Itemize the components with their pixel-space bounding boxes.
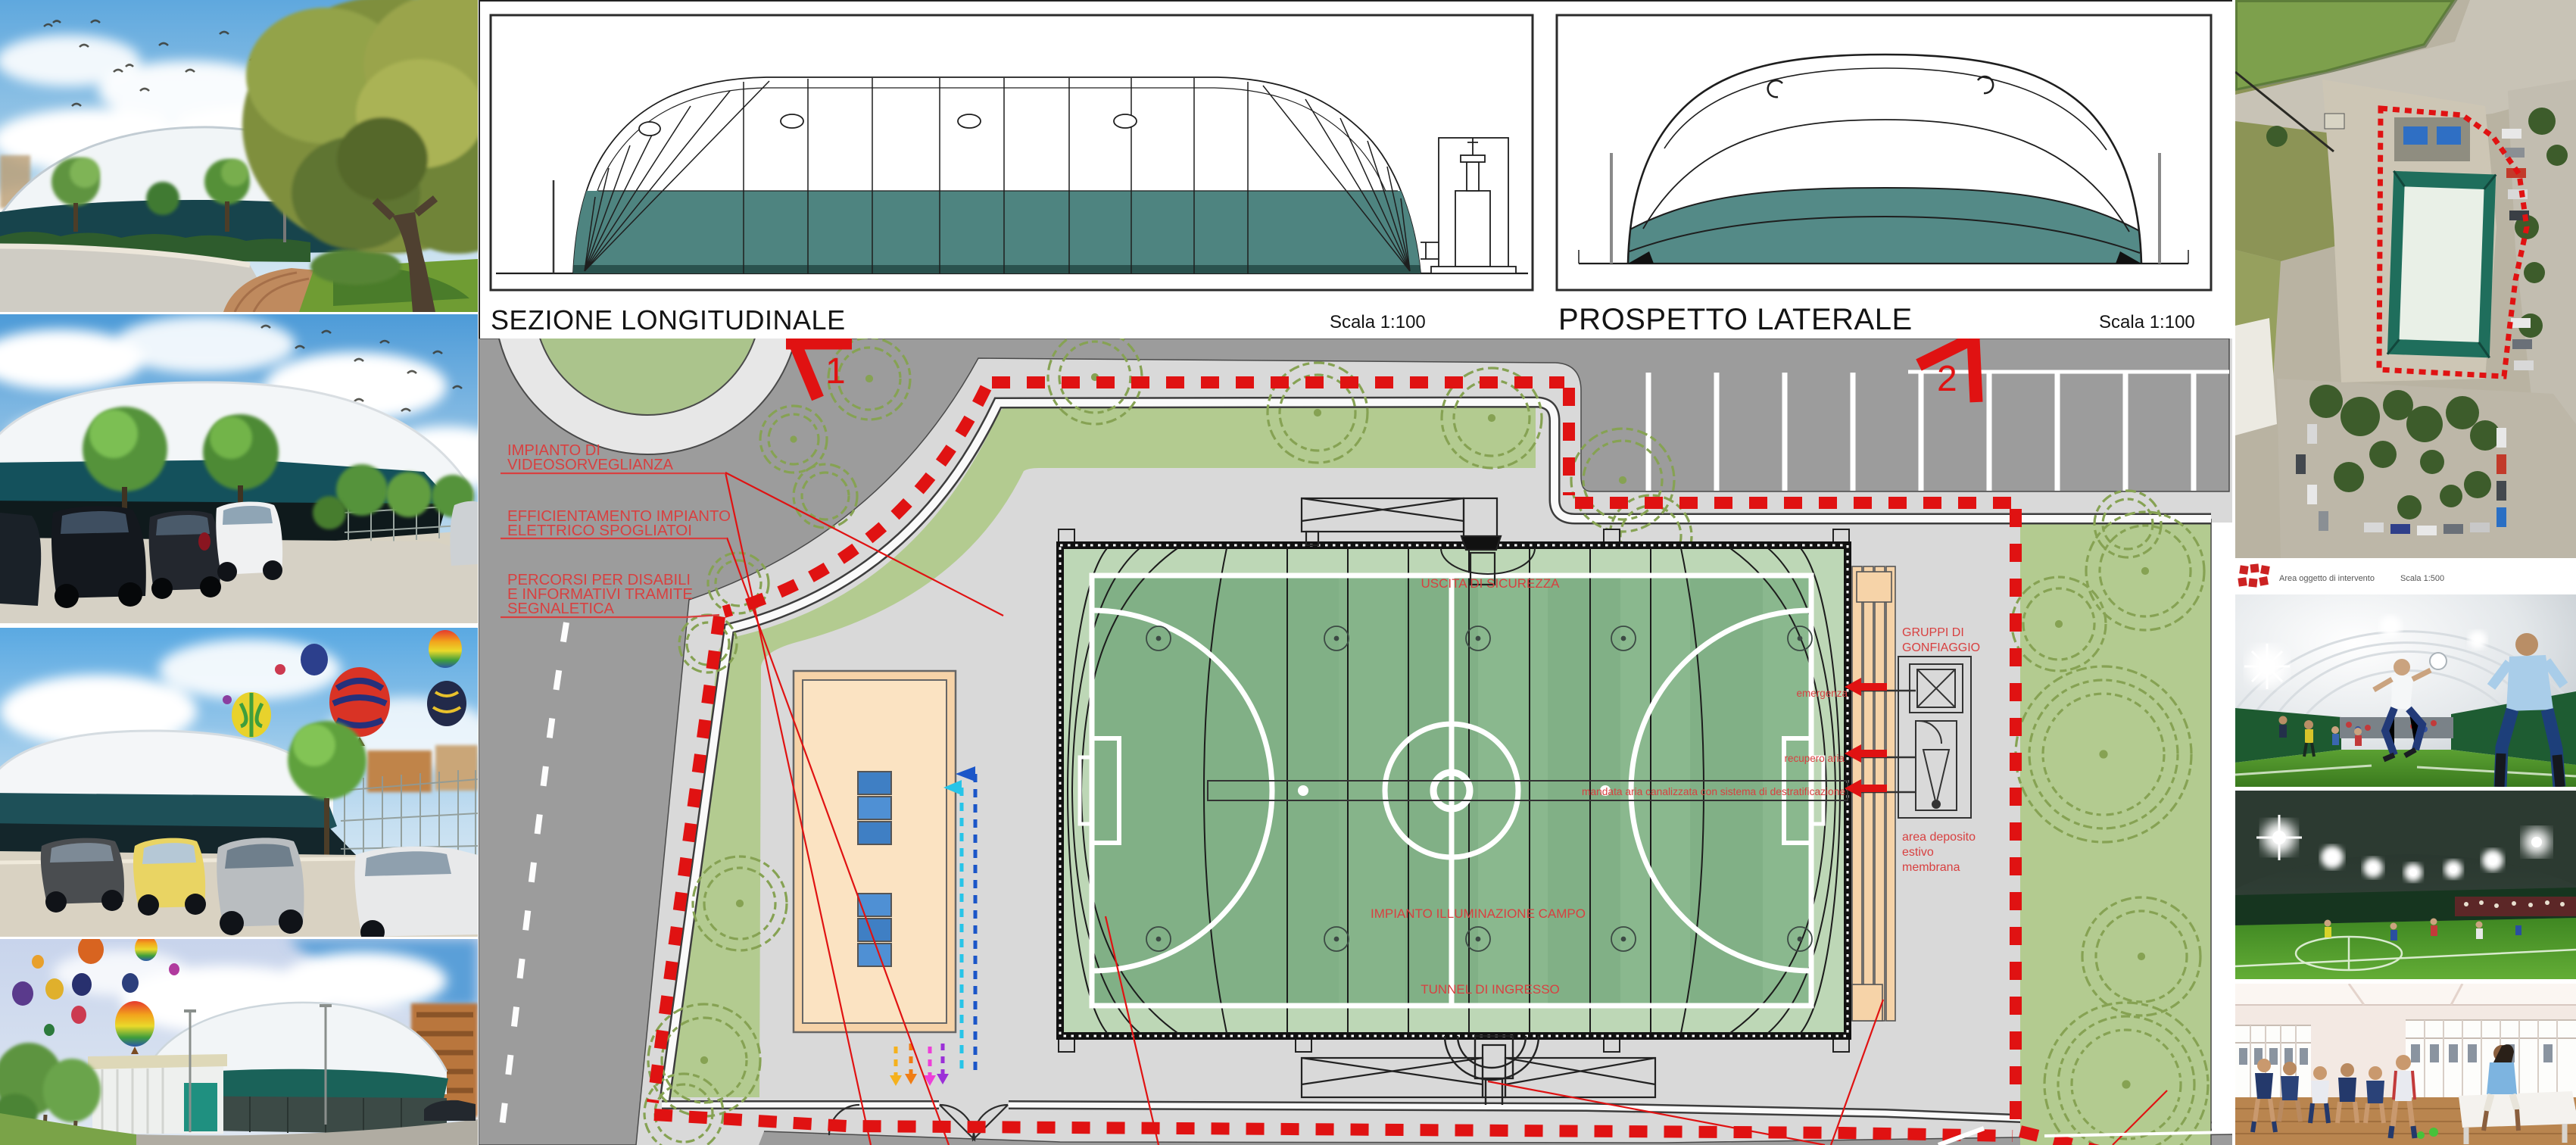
svg-text:GRUPPI DI: GRUPPI DI <box>1902 626 1964 639</box>
svg-text:Scala 1:500: Scala 1:500 <box>2400 574 2444 583</box>
svg-text:Area oggetto di intervento: Area oggetto di intervento <box>2279 574 2375 583</box>
svg-text:IMPIANTO ILLUMINAZIONE CAMPO: IMPIANTO ILLUMINAZIONE CAMPO <box>1371 906 1586 921</box>
svg-text:VIDEOSORVEGLIANZA: VIDEOSORVEGLIANZA <box>507 457 674 473</box>
svg-text:ELETTRICO SPOGLIATOI: ELETTRICO SPOGLIATOI <box>507 523 692 539</box>
svg-text:USCITA DI SICUREZZA: USCITA DI SICUREZZA <box>1421 576 1561 591</box>
svg-text:SEGNALETICA: SEGNALETICA <box>507 601 615 617</box>
svg-text:GONFIAGGIO: GONFIAGGIO <box>1902 641 1980 654</box>
svg-text:2: 2 <box>1937 359 1957 399</box>
svg-text:membrana: membrana <box>1902 861 1960 874</box>
svg-text:emergenza: emergenza <box>1796 688 1848 699</box>
svg-text:TUNNEL DI INGRESSO: TUNNEL DI INGRESSO <box>1421 982 1560 997</box>
svg-text:1: 1 <box>825 351 846 392</box>
svg-text:estivo: estivo <box>1902 846 1934 859</box>
svg-text:mandata aria canalizzata con s: mandata aria canalizzata con sistema di … <box>1582 786 1845 797</box>
svg-text:area deposito: area deposito <box>1902 831 1976 844</box>
svg-text:recupero aria: recupero aria <box>1784 753 1845 764</box>
